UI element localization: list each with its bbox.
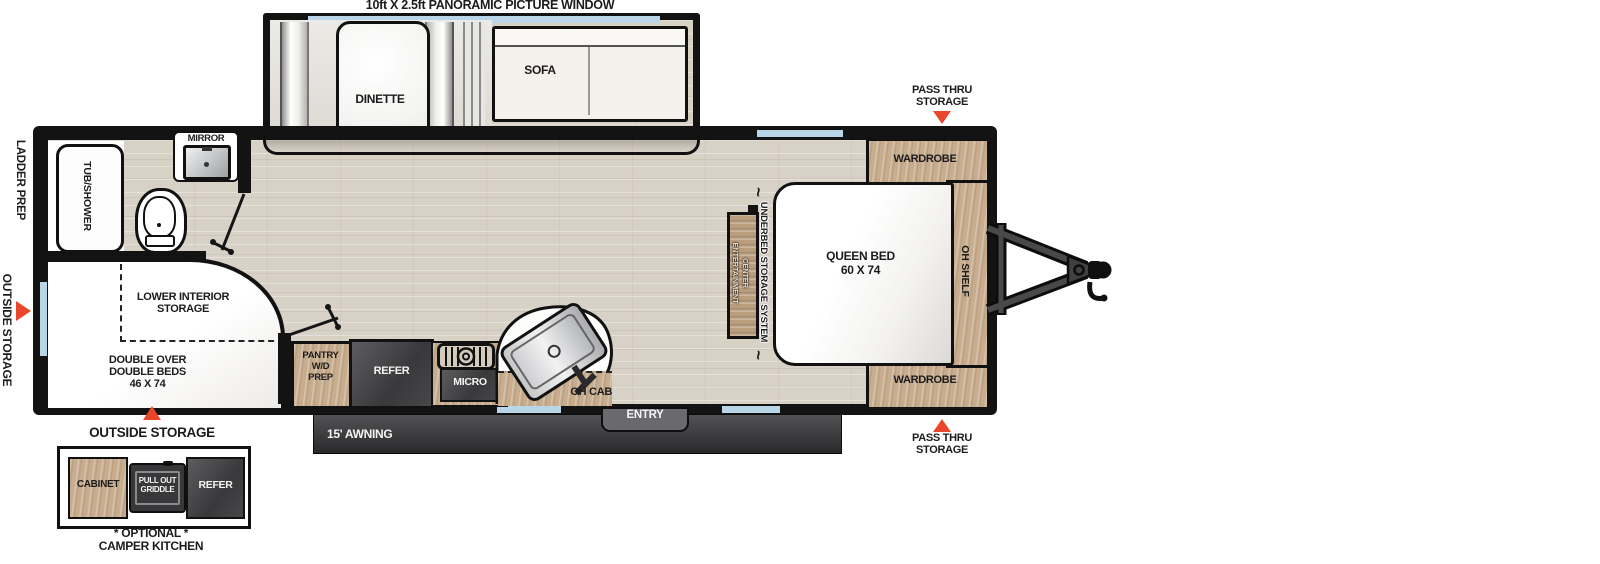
bedroom-top-window <box>757 130 843 137</box>
toilet <box>135 188 187 254</box>
bedroom-divider-wall <box>278 333 291 404</box>
tub-shower-label: TUB/SHOWER <box>80 141 94 251</box>
underbed-squiggle-bottom: ~ <box>751 310 765 400</box>
sofa-divider <box>588 47 590 115</box>
hitch <box>984 208 1112 330</box>
double-beds-label: DOUBLE OVER DOUBLE BEDS 46 X 74 <box>85 354 210 390</box>
bedroom-bottom-window <box>722 406 780 413</box>
pass-thru-bottom-arrow <box>933 419 951 432</box>
rear-wall-window <box>40 282 47 356</box>
toilet-base <box>145 235 175 247</box>
pass-thru-bottom-label: PASS THRU STORAGE <box>896 433 988 456</box>
ck-griddle-knob <box>163 461 173 466</box>
pantry-label: PANTRY W/D PREP <box>291 350 350 383</box>
lower-storage-label: LOWER INTERIOR STORAGE <box>118 291 248 315</box>
outside-storage-bottom-arrow <box>143 406 161 420</box>
wardrobe-top-label: WARDROBE <box>866 153 984 165</box>
awning-label: 15' AWNING <box>327 427 392 441</box>
oh-cab-label: OH CAB <box>552 386 612 398</box>
bath-faucet <box>202 147 212 151</box>
bath-wall-stub <box>238 138 251 193</box>
outside-storage-bottom-label: OUTSIDE STORAGE <box>72 425 232 440</box>
toilet-drain <box>157 223 161 227</box>
bath-sink <box>183 145 231 180</box>
dinette-label: DINETTE <box>336 92 424 106</box>
ck-refer-label: REFER <box>186 479 245 491</box>
pass-thru-top-label: PASS THRU STORAGE <box>896 85 988 108</box>
wardrobe-bottom-label: WARDROBE <box>866 374 984 386</box>
outside-storage-side-arrow <box>16 301 31 321</box>
cooktop-icon <box>437 343 495 370</box>
toilet-bowl <box>143 196 176 238</box>
pass-thru-top-arrow <box>933 111 951 124</box>
refrigerator-label: REFER <box>349 365 434 377</box>
mirror-label: MIRROR <box>175 133 237 144</box>
ladder-prep-label: LADDER PREP <box>13 130 27 230</box>
floorplan-canvas: 10ft X 2.5ft PANORAMIC PICTURE WINDOW DI… <box>0 0 1600 564</box>
sofa-back <box>495 29 685 47</box>
ent-center-label-2: CENTER <box>738 212 752 334</box>
ck-griddle-label: PULL OUT GRIDDLE <box>131 476 184 494</box>
outside-storage-side-label: OUTSIDE STORAGE <box>0 245 14 415</box>
entry-label: ENTRY <box>601 409 689 421</box>
panoramic-window-label: 10ft X 2.5ft PANORAMIC PICTURE WINDOW <box>295 0 685 12</box>
camper-kitchen-box: CABINET PULL OUT GRIDDLE REFER <box>57 446 251 529</box>
ck-griddle: PULL OUT GRIDDLE <box>129 463 186 513</box>
microwave-label: MICRO <box>440 376 500 388</box>
bath-drain <box>204 162 209 167</box>
ck-cabinet-label: CABINET <box>68 479 128 490</box>
mirror-sink-unit: MIRROR <box>173 131 239 182</box>
bath-wall <box>48 251 206 262</box>
sofa-label: SOFA <box>492 63 588 77</box>
slide-edge-line <box>263 130 700 155</box>
kitchen-window <box>497 406 561 413</box>
oh-shelf-label: OH SHELF <box>958 211 972 331</box>
queen-bed-label: QUEEN BED 60 X 74 <box>773 250 948 277</box>
camper-kitchen-caption: * OPTIONAL * CAMPER KITCHEN <box>62 527 240 553</box>
